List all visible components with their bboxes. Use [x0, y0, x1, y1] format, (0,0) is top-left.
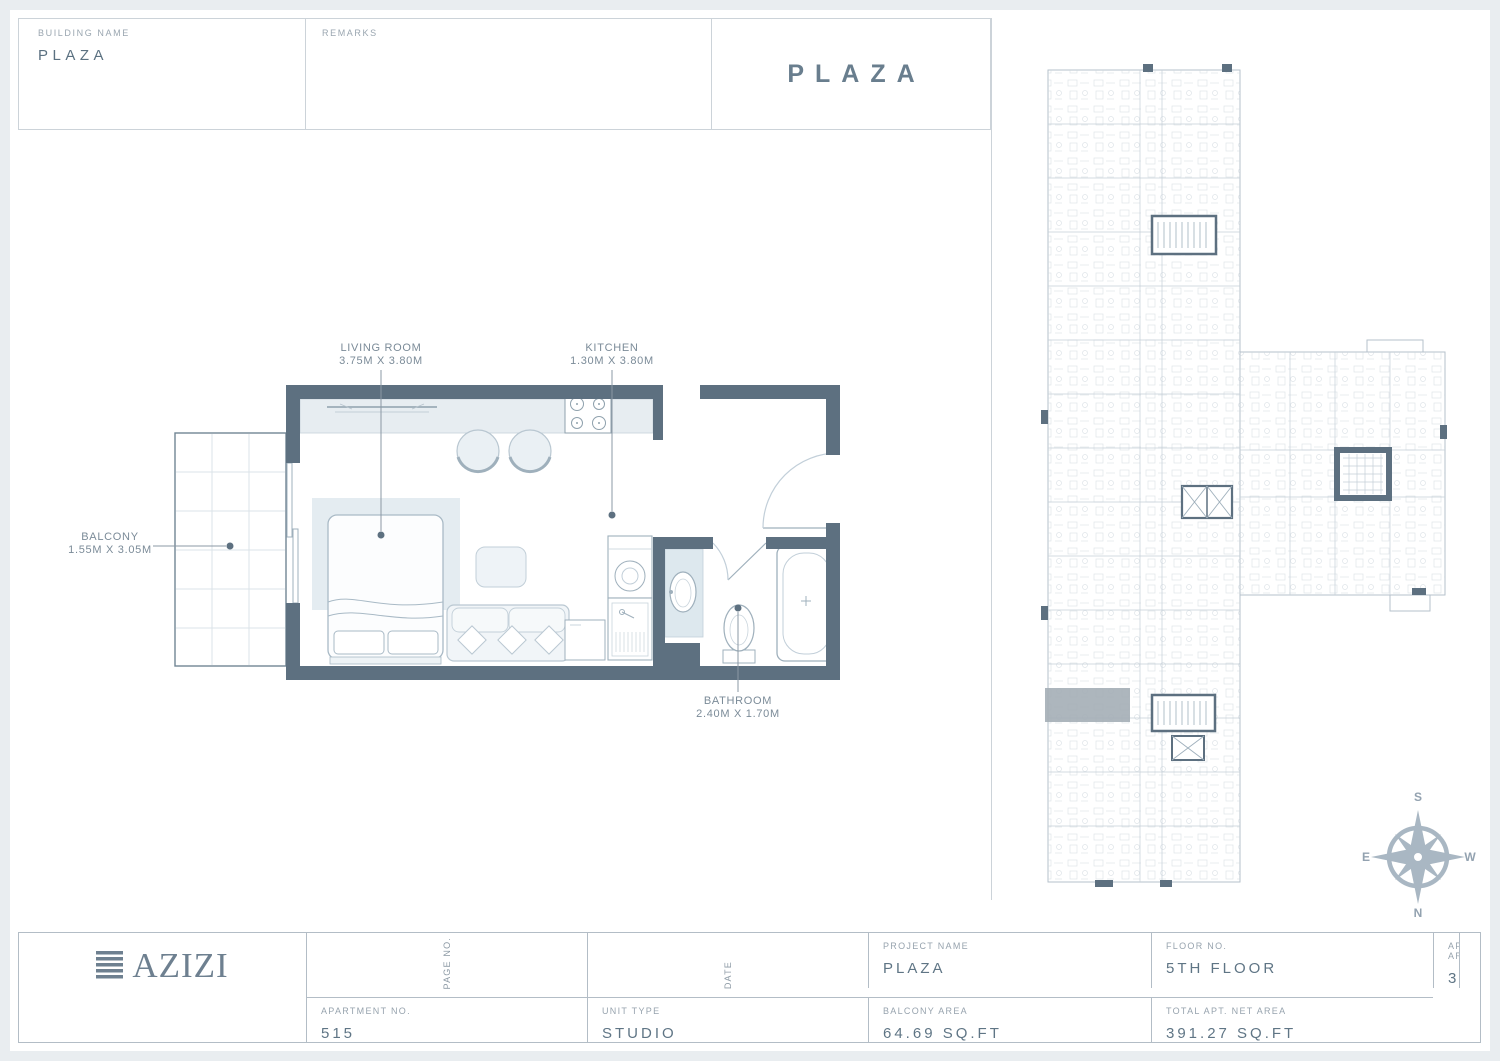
balcony-area-value: 64.69 SQ.FT: [883, 1025, 1151, 1042]
balcony-dims: 1.55M X 3.05M: [68, 544, 152, 557]
key-plan: [1041, 64, 1447, 887]
unit-type-value: STUDIO: [602, 1025, 868, 1042]
apt-area-cell: APT. AREA 326.58 SQ.FT: [1433, 933, 1459, 988]
coffee-table: [476, 547, 526, 587]
bathroom-dims: 2.40M X 1.70M: [696, 708, 780, 721]
bathroom-name: BATHROOM: [696, 695, 780, 708]
compass-icon: S N E W: [1362, 790, 1476, 920]
balcony-area: [175, 433, 286, 666]
unit-type-cell: UNIT TYPE STUDIO: [587, 997, 868, 1042]
balcony-name: BALCONY: [68, 531, 152, 544]
empty-cell: [1459, 933, 1480, 988]
remarks-label: REMARKS: [322, 28, 711, 38]
project-name-value: PLAZA: [883, 960, 1151, 977]
remarks-box: REMARKS: [306, 19, 712, 129]
logo-cell: AZIZI: [19, 933, 306, 997]
apt-area-value: 326.58 SQ.FT: [1448, 970, 1459, 988]
azizi-logo-text: AZIZI: [132, 948, 228, 983]
balcony-area-cell: BALCONY AREA 64.69 SQ.FT: [868, 997, 1151, 1042]
balcony-area-label: BALCONY AREA: [883, 1006, 1151, 1016]
bed: [312, 498, 460, 664]
date-cell: DATE: [587, 933, 868, 997]
project-name-label: PROJECT NAME: [883, 941, 1151, 951]
page-no-label: PAGE NO.: [442, 937, 452, 989]
kitchen-label: KITCHEN 1.30M X 3.80M: [570, 342, 654, 368]
plan-drawing: S N E W: [0, 0, 1500, 1061]
elevator-core: [1182, 486, 1232, 518]
vertical-divider: [991, 18, 992, 900]
toilet-icon: [723, 605, 755, 663]
azizi-logo: AZIZI: [96, 948, 228, 983]
living-room-dims: 3.75M X 3.80M: [339, 355, 423, 368]
living-room-label: LIVING ROOM 3.75M X 3.80M: [339, 342, 423, 368]
bathroom-vanity: [665, 549, 703, 637]
stair-core-top: [1152, 216, 1216, 254]
sheet-title-box: PLAZA: [712, 19, 990, 129]
sheet-title: PLAZA: [776, 60, 925, 89]
project-name-cell: PROJECT NAME PLAZA: [868, 933, 1151, 988]
highlighted-unit: [1045, 688, 1130, 722]
kitchen-name: KITCHEN: [570, 342, 654, 355]
building-name-value: PLAZA: [38, 47, 305, 64]
total-area-value: 391.27 SQ.FT: [1166, 1025, 1433, 1042]
page-no-cell: PAGE NO.: [306, 933, 587, 997]
kitchen-sink: [608, 598, 652, 660]
title-block-header: BUILDING NAME PLAZA REMARKS PLAZA: [18, 18, 991, 130]
kitchen-cabinet: [565, 620, 605, 660]
unit-type-label: UNIT TYPE: [602, 1006, 868, 1016]
dining-chairs: [457, 430, 551, 472]
compass-north-label: N: [1414, 906, 1423, 920]
building-name-label: BUILDING NAME: [38, 28, 305, 38]
compass-east-label: E: [1362, 850, 1370, 864]
apt-area-label: APT. AREA: [1448, 941, 1459, 961]
balcony-sliding-door: [287, 463, 298, 603]
courtyard-core: [1337, 450, 1389, 498]
compass-west-label: W: [1464, 850, 1476, 864]
apartment-no-cell: APARTMENT NO. 515: [306, 997, 587, 1042]
bathroom-label: BATHROOM 2.40M X 1.70M: [696, 695, 780, 721]
floor-no-value: 5TH FLOOR: [1166, 960, 1433, 977]
building-name-box: BUILDING NAME PLAZA: [19, 19, 306, 129]
floor-plan-sheet: { "header": { "building_name_label": "BU…: [0, 0, 1500, 1061]
azizi-logo-bars-icon: [96, 951, 123, 980]
total-area-label: TOTAL APT. NET AREA: [1166, 1006, 1433, 1016]
living-room-name: LIVING ROOM: [339, 342, 423, 355]
floor-no-label: FLOOR NO.: [1166, 941, 1433, 951]
date-label: DATE: [723, 961, 733, 989]
title-block-footer: AZIZI PROJECT NAME PLAZA FLOOR NO. 5TH F…: [18, 932, 1481, 1043]
entry-door-arc: [763, 453, 838, 528]
total-area-cell: TOTAL APT. NET AREA 391.27 SQ.FT: [1151, 997, 1433, 1042]
washing-machine-icon: [608, 536, 652, 598]
kitchen-dims: 1.30M X 3.80M: [570, 355, 654, 368]
balcony-label: BALCONY 1.55M X 3.05M: [68, 531, 152, 557]
apartment-no-label: APARTMENT NO.: [321, 1006, 587, 1016]
compass-south-label: S: [1414, 790, 1422, 804]
sofa: [447, 605, 569, 661]
apartment-no-value: 515: [321, 1025, 587, 1042]
floor-no-cell: FLOOR NO. 5TH FLOOR: [1151, 933, 1433, 988]
bathroom-door-arc: [713, 543, 766, 580]
